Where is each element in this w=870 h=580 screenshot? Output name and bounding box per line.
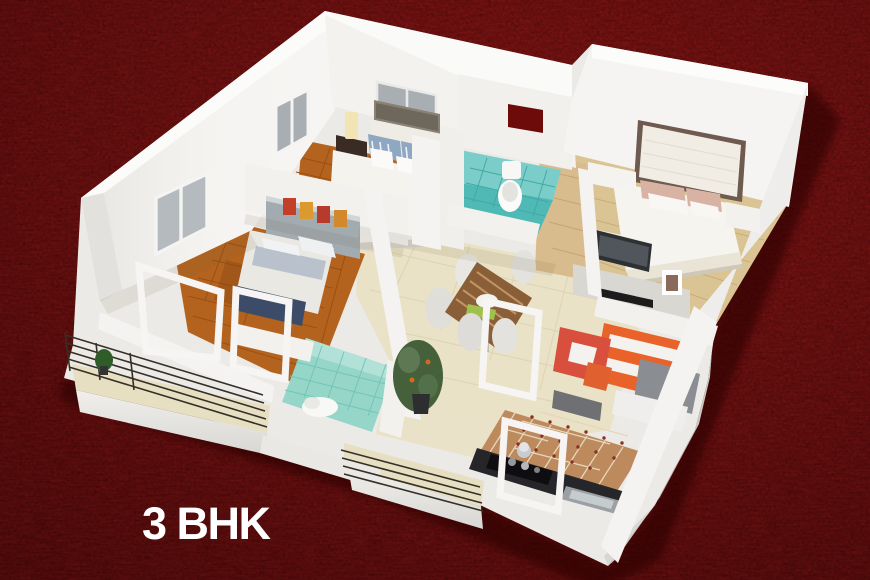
svg-text:3 BHK: 3 BHK bbox=[142, 498, 272, 549]
